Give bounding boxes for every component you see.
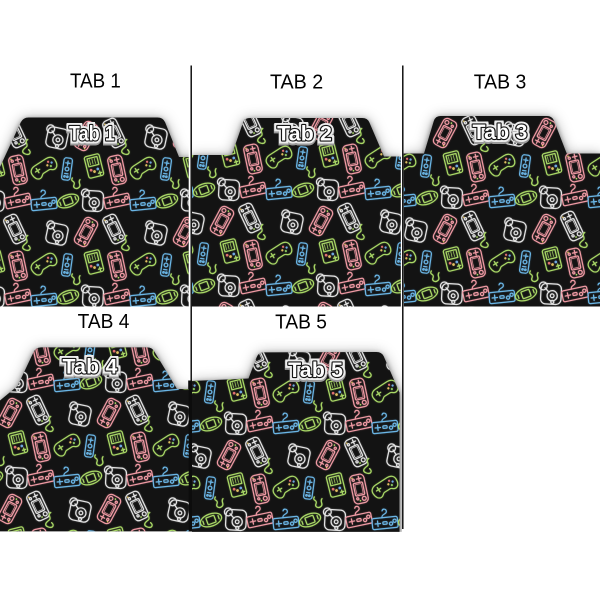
svg-text:TAB 2: TAB 2 [270, 71, 323, 93]
svg-text:TAB 3: TAB 3 [474, 71, 527, 93]
svg-text:Tab 4: Tab 4 [63, 356, 118, 379]
svg-text:Tab 5: Tab 5 [288, 359, 343, 382]
svg-text:Tab 1: Tab 1 [69, 123, 115, 146]
svg-text:TAB 1: TAB 1 [70, 71, 121, 93]
svg-text:Tab 3: Tab 3 [473, 121, 528, 144]
svg-text:Tab 2: Tab 2 [277, 123, 332, 146]
svg-text:TAB 4: TAB 4 [78, 311, 130, 333]
svg-text:TAB 5: TAB 5 [275, 312, 327, 334]
